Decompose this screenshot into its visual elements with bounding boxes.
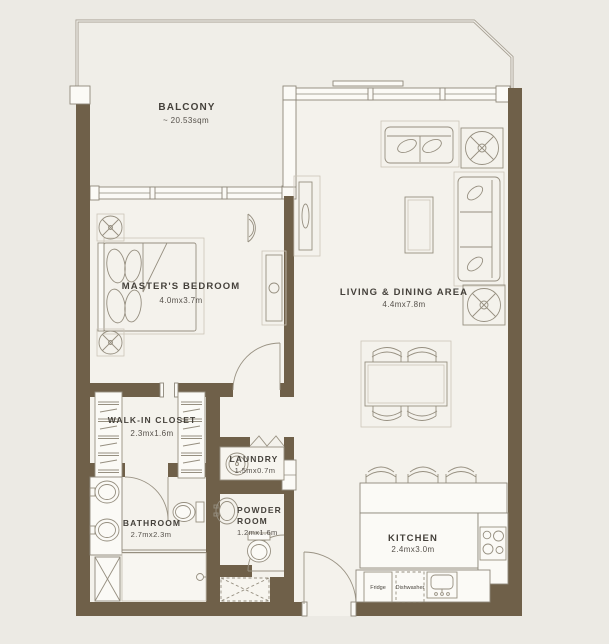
- toilet: [248, 533, 271, 562]
- master-bedroom-label: MASTER'S BEDROOM: [122, 281, 241, 292]
- floor-plan-drawing: BALCONY ~ 20.53sqm MASTER'S BEDROOM 4.0m…: [0, 0, 609, 644]
- entry-threshold-floor: [302, 602, 356, 616]
- powder-room-label-2: ROOM: [237, 516, 268, 526]
- living-dining-dims: 4.4mx7.8m: [382, 300, 425, 309]
- laundry-dims: 1.5mx0.7m: [235, 466, 276, 475]
- powder-room-dims: 1.2mx1.6m: [237, 528, 278, 537]
- walk-in-closet-dims: 2.3mx1.6m: [130, 429, 173, 438]
- kitchen-island-bar: [360, 483, 507, 513]
- shaft-box: [95, 557, 120, 601]
- powder-room-label-1: POWDER: [237, 505, 282, 515]
- fridge-label: Fridge: [370, 585, 386, 591]
- cooktop: [480, 527, 506, 560]
- living-dining-label: LIVING & DINING AREA: [340, 287, 468, 298]
- laundry-label: LAUNDRY: [230, 454, 279, 464]
- bathroom-dims: 2.7mx2.3m: [131, 530, 172, 539]
- vanity-double-sink: [90, 477, 122, 555]
- wardrobe: [95, 392, 122, 478]
- shower-area: [122, 550, 207, 601]
- bathroom-label: BATHROOM: [123, 518, 181, 528]
- balcony-living-column: [283, 100, 296, 187]
- kitchen-label: KITCHEN: [388, 533, 438, 544]
- balcony-area: ~ 20.53sqm: [163, 116, 209, 125]
- kitchen-dims: 2.4mx3.0m: [391, 545, 434, 554]
- floor-plan-page: BALCONY ~ 20.53sqm MASTER'S BEDROOM 4.0m…: [0, 0, 609, 644]
- walk-in-closet-label: WALK-IN CLOSET: [108, 415, 197, 425]
- wardrobe: [178, 392, 205, 478]
- dishwasher-label: Dishwasher: [396, 585, 425, 591]
- bedroom-window: [90, 186, 296, 200]
- entry-hatch-box: [221, 578, 269, 601]
- balcony-label: BALCONY: [158, 102, 215, 113]
- master-bedroom-dims: 4.0mx3.7m: [159, 296, 202, 305]
